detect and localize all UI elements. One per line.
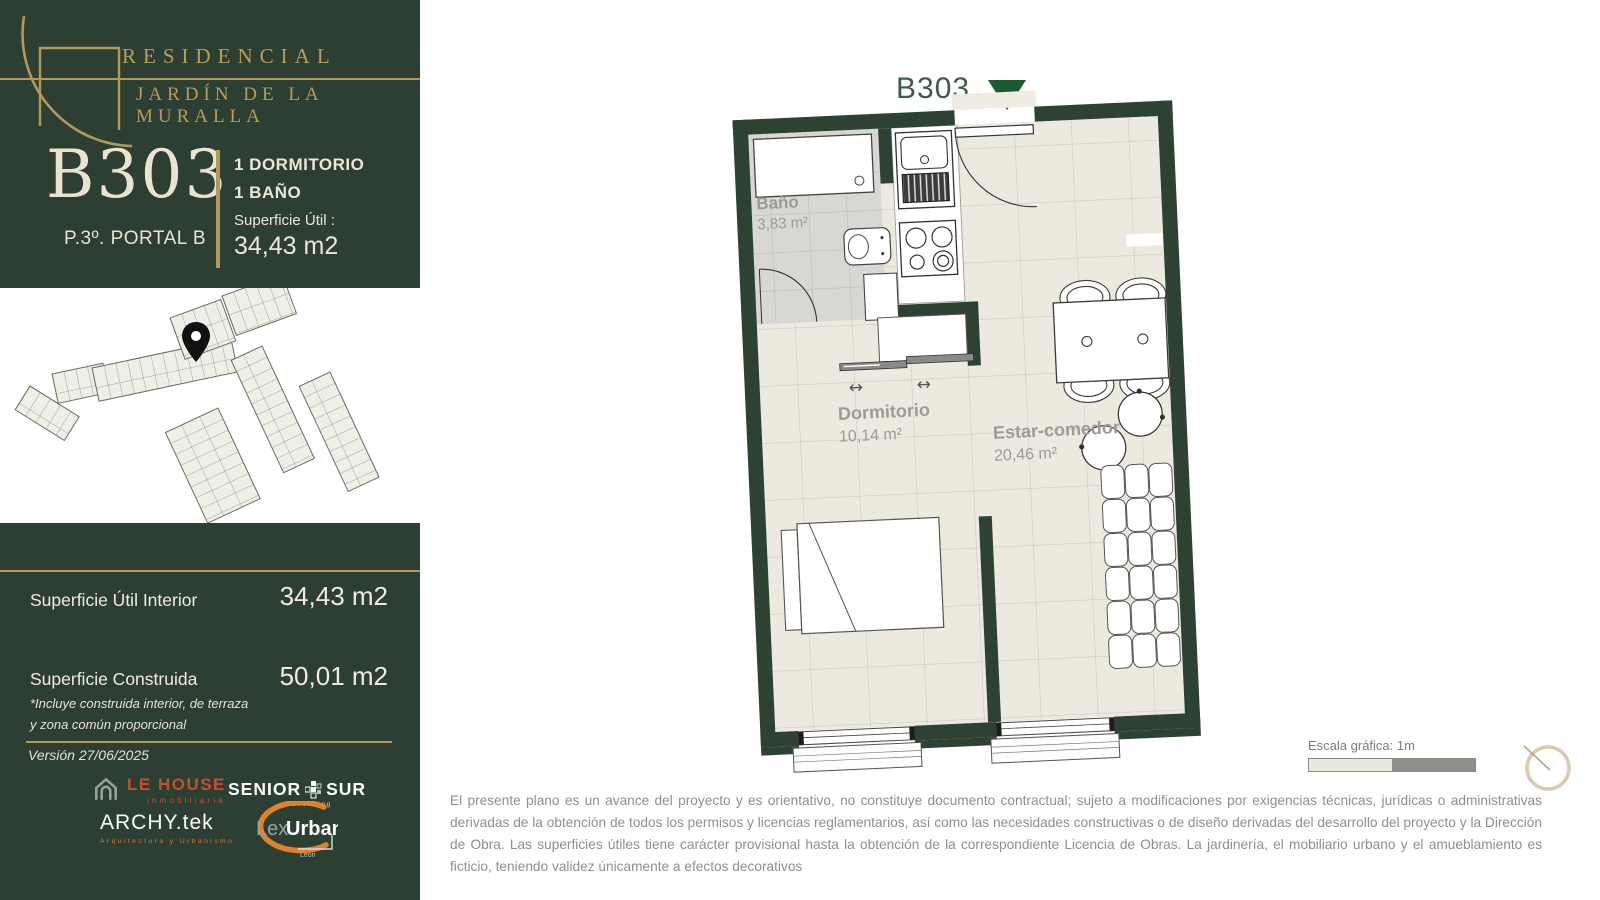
unit-bathrooms: 1 BAÑO bbox=[234, 183, 301, 203]
unit-floor: P.3º. PORTAL B bbox=[64, 228, 206, 250]
scale-segment-light bbox=[1309, 759, 1392, 771]
kitchen-sink bbox=[895, 130, 954, 208]
brand-name-line1: RESIDENCIAL bbox=[122, 44, 337, 69]
slide-arrow-icon: ↔ bbox=[848, 378, 863, 399]
kitchen-hob bbox=[899, 220, 957, 276]
bed bbox=[781, 517, 944, 634]
floor-plan: ↔ ↔ bbox=[728, 82, 1207, 786]
room-name-bedroom: Dormitorio bbox=[837, 400, 930, 424]
compass-icon bbox=[1518, 738, 1578, 796]
surfaces-block: SUPERFICIES APROXIMADAS Superficie Útil … bbox=[0, 523, 420, 900]
logo-lexurban: Lex Urban León bbox=[238, 801, 338, 868]
unit-divider bbox=[216, 150, 220, 268]
sofa bbox=[1101, 463, 1181, 669]
logo-lehouse: LE HOUSE inmobiliaria bbox=[92, 775, 226, 805]
window-living bbox=[990, 717, 1120, 763]
unit-area-label: Superficie Útil : bbox=[234, 212, 335, 229]
unit-area-value: 34,43 m2 bbox=[234, 232, 338, 261]
site-plan-map bbox=[0, 288, 420, 523]
brand-divider bbox=[0, 78, 420, 80]
seniorsur-left: SENIOR bbox=[228, 779, 301, 800]
lehouse-name: LE HOUSE bbox=[127, 775, 226, 795]
version-date: Versión 27/06/2025 bbox=[28, 747, 149, 763]
slide-arrow-icon: ↔ bbox=[916, 375, 931, 396]
room-area-bedroom: 10,14 m² bbox=[839, 426, 904, 446]
site-plan-band bbox=[0, 288, 420, 523]
archytek-sub: Arquitectura y Urbanismo bbox=[100, 838, 234, 845]
lexurban-swoosh-icon: Lex Urban León bbox=[238, 801, 338, 863]
bath-cabinet bbox=[864, 273, 899, 320]
surface-note-line1: *Incluye construida interior, de terraza bbox=[30, 696, 248, 711]
surface-built-value: 50,01 m2 bbox=[280, 661, 388, 692]
surface-util-label: Superficie Útil Interior bbox=[30, 590, 197, 611]
shower-tray bbox=[753, 134, 874, 197]
scale-bar bbox=[1308, 758, 1476, 772]
unit-code: B303 bbox=[46, 142, 228, 208]
unit-bedrooms: 1 DORMITORIO bbox=[234, 155, 364, 175]
logo-archytek: ARCHY.tek Arquitectura y Urbanismo bbox=[100, 811, 234, 845]
wall-unit bbox=[1126, 233, 1163, 247]
dining-table bbox=[1053, 298, 1169, 383]
lexurban-sub: León bbox=[300, 852, 316, 859]
archytek-name: ARCHY.tek bbox=[100, 811, 234, 835]
sidebar-header-block: RESIDENCIAL JARDÍN DE LA MURALLA B303 P.… bbox=[0, 0, 420, 288]
pixel-squares-icon bbox=[305, 781, 322, 799]
surfaces-divider-top bbox=[0, 570, 420, 572]
lexurban-urban: Urban bbox=[286, 818, 338, 840]
toilet bbox=[844, 227, 892, 265]
surfaces-divider-bottom bbox=[26, 741, 392, 743]
surface-built-label: Superficie Construida bbox=[30, 669, 197, 690]
house-icon bbox=[92, 775, 120, 803]
plan-sheet: RESIDENCIAL JARDÍN DE LA MURALLA B303 P.… bbox=[0, 0, 1600, 900]
scale-label: Escala gráfica: 1m bbox=[1308, 738, 1415, 753]
seniorsur-right: SUR bbox=[326, 779, 366, 800]
entrance-landing bbox=[952, 91, 1037, 111]
surface-util-value: 34,43 m2 bbox=[280, 581, 388, 612]
disclaimer-text: El presente plano es un avance del proye… bbox=[450, 790, 1542, 878]
window-bedroom bbox=[792, 726, 922, 772]
surface-note-line2: y zona común proporcional bbox=[30, 717, 186, 732]
lehouse-sub: inmobiliaria bbox=[127, 796, 226, 805]
brand-name-line2: JARDÍN DE LA MURALLA bbox=[136, 84, 420, 128]
room-area-living: 20,46 m² bbox=[994, 445, 1059, 465]
lexurban-lex: Lex bbox=[256, 818, 288, 840]
scale-segment-dark bbox=[1392, 759, 1475, 771]
room-name-bath: Baño bbox=[756, 192, 799, 213]
room-area-bath: 3,83 m² bbox=[757, 214, 809, 233]
